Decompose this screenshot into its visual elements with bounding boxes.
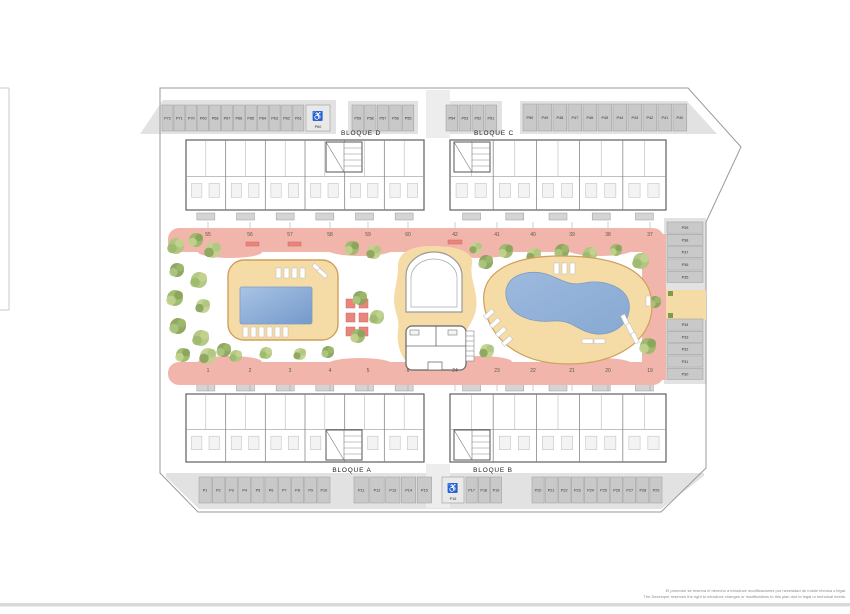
unit-number: 24 [452, 368, 458, 374]
parking-space-label: P35 [682, 275, 689, 279]
parking-space-label: P64 [259, 117, 266, 121]
parking-space-label: P10 [321, 489, 328, 493]
parking-space: P10 [318, 477, 330, 503]
terrace-furniture-icon [237, 213, 255, 220]
parking-space-label: P29 [653, 489, 660, 493]
unit-number: 37 [647, 232, 653, 238]
unit-number: 38 [605, 232, 611, 238]
parking-space: P56 [390, 105, 401, 131]
parking-space-label: P41 [662, 116, 669, 120]
sun-lounger-icon [267, 327, 272, 337]
unit-number: 4 [329, 368, 332, 374]
bench-icon [246, 242, 259, 246]
accessible-parking-top: ♿ P60 [306, 105, 330, 131]
sun-lounger-icon [259, 327, 264, 337]
sun-lounger-icon [562, 263, 567, 274]
unit-number: 21 [569, 368, 575, 374]
parking-space: P20 [532, 477, 544, 503]
parking-space: P24 [584, 477, 596, 503]
parking-space-label: P7 [282, 489, 287, 493]
parking-space-label: P15 [421, 489, 428, 493]
site-plan-sheet: P72P71P70P69P68P67P66P65P64P63P62P61P59P… [0, 0, 850, 614]
parking-space-label: P54 [449, 117, 456, 121]
terrace-furniture-icon [549, 213, 567, 220]
parking-space: P51 [485, 105, 497, 131]
parking-space-label: P24 [587, 489, 594, 493]
parking-space-label: P63 [271, 117, 278, 121]
parking-space-label: P9 [308, 489, 313, 493]
parking-space-label: P45 [602, 116, 609, 120]
walkway-curve [328, 244, 392, 256]
block-label-d: BLOQUE D [341, 130, 381, 137]
parking-space-label: P53 [462, 117, 469, 121]
parking-space: P49 [538, 104, 552, 131]
stair-core [326, 430, 362, 460]
parking-space: P8 [291, 477, 303, 503]
parking-space: P35 [667, 271, 703, 282]
sun-lounger-icon [275, 327, 280, 337]
terrace-furniture-icon [463, 213, 481, 220]
parking-space-label: P52 [475, 117, 482, 121]
sun-lounger-icon [570, 263, 575, 274]
parking-space-label: P1 [203, 489, 208, 493]
parking-space: P72 [162, 105, 173, 131]
parking-space-label: P47 [572, 116, 579, 120]
bench-icon [448, 240, 462, 244]
parking-space: P2 [212, 477, 224, 503]
parking-space-label: P20 [535, 489, 542, 493]
parking-space: P70 [186, 105, 197, 131]
sun-lounger-icon [646, 296, 651, 306]
arched-court [406, 252, 462, 312]
sun-lounger-icon [243, 327, 248, 337]
sun-lounger-icon [594, 339, 605, 344]
accessible-parking-bottom: ♿ P16 [442, 477, 464, 503]
unit-number: 58 [327, 232, 333, 238]
parking-space-label: P46 [587, 116, 594, 120]
unit-number: 19 [647, 368, 653, 374]
parking-space-label: P55 [405, 117, 412, 121]
sun-lounger-icon [251, 327, 256, 337]
sun-lounger-icon [276, 268, 281, 278]
parking-space-label: P32 [682, 348, 689, 352]
parking-space: P55 [402, 105, 413, 131]
parking-space-label: P33 [682, 335, 689, 339]
parking-space-label: P71 [176, 117, 183, 121]
parking-space: P25 [598, 477, 610, 503]
parking-space: P39 [667, 222, 703, 233]
stairs-icon [466, 331, 474, 361]
parking-space: P41 [658, 104, 672, 131]
parking-space: P36 [667, 259, 703, 270]
parking-space: P32 [667, 344, 703, 355]
parking-space-label: P51 [488, 117, 495, 121]
parking-space-label: P30 [682, 372, 689, 376]
unit-number: 22 [530, 368, 536, 374]
parking-space-label: P48 [557, 116, 564, 120]
parking-space-label: P72 [164, 117, 171, 121]
parking-space-label: P6 [269, 489, 274, 493]
terrace-furniture-icon [592, 213, 610, 220]
parking-space: P64 [257, 105, 268, 131]
apartment-block [186, 140, 424, 220]
parking-space-label: P36 [682, 263, 689, 267]
parking-space: P44 [613, 104, 627, 131]
parking-space-label: P50 [527, 116, 534, 120]
block-label-c: BLOQUE C [474, 130, 514, 137]
pool-house [406, 326, 466, 370]
block-label-b: BLOQUE B [473, 467, 513, 474]
sun-lounger-icon [554, 263, 559, 274]
parking-space: P15 [417, 477, 431, 503]
parking-space: P27 [624, 477, 636, 503]
parking-space: P53 [459, 105, 471, 131]
terrace-furniture-icon [276, 213, 294, 220]
parking-space-label: P31 [682, 360, 689, 364]
parking-space-label: P61 [295, 117, 302, 121]
bench-icon [288, 242, 301, 246]
parking-space: P66 [233, 105, 244, 131]
terrace-furniture-icon [237, 384, 255, 391]
parking-space-label: P39 [682, 226, 689, 230]
parking-space: P68 [210, 105, 221, 131]
stair-core [326, 142, 362, 172]
parking-space: P23 [571, 477, 583, 503]
parking-space: P67 [222, 105, 233, 131]
sun-lounger-icon [292, 268, 297, 278]
parking-space: P38 [667, 234, 703, 245]
unit-number: 56 [247, 232, 253, 238]
parking-space: P34 [667, 319, 703, 330]
parking-space: P21 [545, 477, 557, 503]
parking-space: P57 [377, 105, 388, 131]
parking-space-label: P44 [617, 116, 624, 120]
unit-number: 39 [569, 232, 575, 238]
wheelchair-icon: ♿ [312, 110, 323, 121]
apartment-block [186, 384, 424, 462]
parking-space-label: P40 [677, 116, 684, 120]
parking-space-label: P62 [283, 117, 290, 121]
parking-space-label: P22 [561, 489, 568, 493]
parking-space: P26 [611, 477, 623, 503]
parking-space: P33 [667, 331, 703, 342]
parking-space: P45 [598, 104, 612, 131]
parking-space: P19 [490, 477, 501, 503]
parking-space: P63 [269, 105, 280, 131]
unit-number: 20 [605, 368, 611, 374]
parking-space-label: P16 [450, 497, 457, 501]
parking-space: P17 [466, 477, 477, 503]
unit-number: 1 [207, 368, 210, 374]
pergola-seat-icon [359, 313, 368, 322]
parking-space: P18 [478, 477, 489, 503]
terrace-furniture-icon [316, 384, 334, 391]
parking-space: P37 [667, 247, 703, 258]
parking-space-label: P43 [632, 116, 639, 120]
parking-space-label: P42 [647, 116, 654, 120]
parking-space: P7 [278, 477, 290, 503]
unit-number: 3 [289, 368, 292, 374]
walkway-curve [328, 358, 392, 370]
terrace-furniture-icon [276, 384, 294, 391]
footer-rule [0, 603, 850, 607]
parking-space-label: P5 [256, 489, 261, 493]
terrace-furniture-icon [197, 213, 215, 220]
parking-space: P30 [667, 368, 703, 379]
left-pool [240, 287, 312, 324]
parking-space: P61 [293, 105, 304, 131]
parking-space: P71 [174, 105, 185, 131]
parking-space: P9 [305, 477, 317, 503]
parking-space-label: P49 [542, 116, 549, 120]
parking-space: P13 [386, 477, 400, 503]
parking-space: P31 [667, 356, 703, 367]
wheelchair-icon: ♿ [447, 482, 458, 493]
planter-icon [668, 291, 673, 296]
parking-space-label: P60 [315, 125, 322, 129]
terrace-furniture-icon [635, 213, 653, 220]
unit-number: 60 [405, 232, 411, 238]
parking-space-label: P28 [639, 489, 646, 493]
parking-space: P62 [281, 105, 292, 131]
sun-lounger-icon [300, 268, 305, 278]
parking-space: P11 [354, 477, 368, 503]
unit-number: 59 [365, 232, 371, 238]
parking-space-label: P56 [392, 117, 399, 121]
parking-space-label: P25 [600, 489, 607, 493]
parking-space-label: P18 [480, 489, 487, 493]
parking-space-label: P68 [212, 117, 219, 121]
parking-space-label: P3 [229, 489, 234, 493]
parking-space: P46 [583, 104, 597, 131]
parking-space: P22 [558, 477, 570, 503]
parking-space-label: P2 [216, 489, 221, 493]
parking-space-label: P13 [389, 489, 396, 493]
parking-space: P50 [523, 104, 537, 131]
sun-lounger-icon [582, 339, 593, 344]
parking-space: P48 [553, 104, 567, 131]
unit-number: 2 [249, 368, 252, 374]
parking-space-label: P19 [493, 489, 500, 493]
parking-space: P12 [370, 477, 384, 503]
parking-space: P58 [365, 105, 376, 131]
walkway-curve [568, 244, 632, 256]
parking-space: P65 [245, 105, 256, 131]
unit-number: 42 [452, 232, 458, 238]
parking-space-label: P67 [224, 117, 231, 121]
terrace-furniture-icon [197, 384, 215, 391]
parking-space: P5 [252, 477, 264, 503]
parking-space: P4 [239, 477, 251, 503]
unit-number: 55 [205, 232, 211, 238]
terrace-furniture-icon [316, 213, 334, 220]
parking-space-label: P37 [682, 251, 689, 255]
terrace-furniture-icon [395, 384, 413, 391]
unit-number: 5 [367, 368, 370, 374]
parking-space: P52 [472, 105, 484, 131]
planter-icon [668, 313, 673, 318]
terrace-furniture-icon [356, 213, 374, 220]
parking-space-label: P27 [626, 489, 633, 493]
sun-lounger-icon [284, 268, 289, 278]
disclaimer-es: El promotor se reserva el derecho a intr… [666, 588, 846, 593]
parking-space: P43 [628, 104, 642, 131]
site-plan-drawing: P72P71P70P69P68P67P66P65P64P63P62P61P59P… [0, 0, 850, 614]
unit-number: 57 [287, 232, 293, 238]
parking-space-label: P4 [242, 489, 247, 493]
parking-space: P40 [673, 104, 687, 131]
parking-space: P6 [265, 477, 277, 503]
parking-space: P42 [643, 104, 657, 131]
parking-space: P14 [401, 477, 415, 503]
unit-number: 41 [494, 232, 500, 238]
parking-space-label: P57 [380, 117, 387, 121]
right-entrance [666, 290, 706, 320]
terrace-furniture-icon [635, 384, 653, 391]
parking-space-label: P8 [295, 489, 300, 493]
parking-space-label: P12 [374, 489, 381, 493]
parking-space: P54 [446, 105, 458, 131]
parking-space-label: P17 [468, 489, 475, 493]
unit-number: 40 [530, 232, 536, 238]
parking-space-label: P58 [367, 117, 374, 121]
parking-space: P1 [199, 477, 211, 503]
parking-space-label: P21 [548, 489, 555, 493]
unit-number: 23 [494, 368, 500, 374]
parking-space-label: P69 [200, 117, 207, 121]
terrace-furniture-icon [395, 213, 413, 220]
central-services-area [394, 246, 477, 370]
pergola-seat-icon [346, 313, 355, 322]
terrace-furniture-icon [592, 384, 610, 391]
parking-space-label: P70 [188, 117, 195, 121]
parking-space-label: P38 [682, 238, 689, 242]
terrace-furniture-icon [506, 213, 524, 220]
disclaimer-en: The Developer reserves the right to intr… [643, 594, 846, 599]
sun-lounger-icon [283, 327, 288, 337]
terrace-furniture-icon [506, 384, 524, 391]
block-label-a: BLOQUE A [332, 467, 371, 474]
parking-space-label: P34 [682, 323, 689, 327]
parking-space-label: P65 [247, 117, 254, 121]
parking-space: P28 [637, 477, 649, 503]
parking-space: P29 [650, 477, 662, 503]
stair-core [454, 142, 490, 172]
parking-space-label: P26 [613, 489, 620, 493]
parking-space-label: P66 [236, 117, 243, 121]
parking-space: P59 [352, 105, 363, 131]
parking-space-label: P23 [574, 489, 581, 493]
parking-space: P69 [198, 105, 209, 131]
stair-core [454, 430, 490, 460]
parking-space: P3 [225, 477, 237, 503]
unit-number: 6 [407, 368, 410, 374]
parking-space: P47 [568, 104, 582, 131]
parking-space-label: P14 [405, 489, 412, 493]
parking-space-label: P11 [358, 489, 364, 493]
terrace-furniture-icon [463, 384, 481, 391]
left-pool-area [228, 260, 338, 340]
disclaimer: El promotor se reserva el derecho a intr… [643, 588, 846, 599]
parking-space-label: P59 [354, 117, 361, 121]
terrace-furniture-icon [549, 384, 567, 391]
terrace-furniture-icon [356, 384, 374, 391]
